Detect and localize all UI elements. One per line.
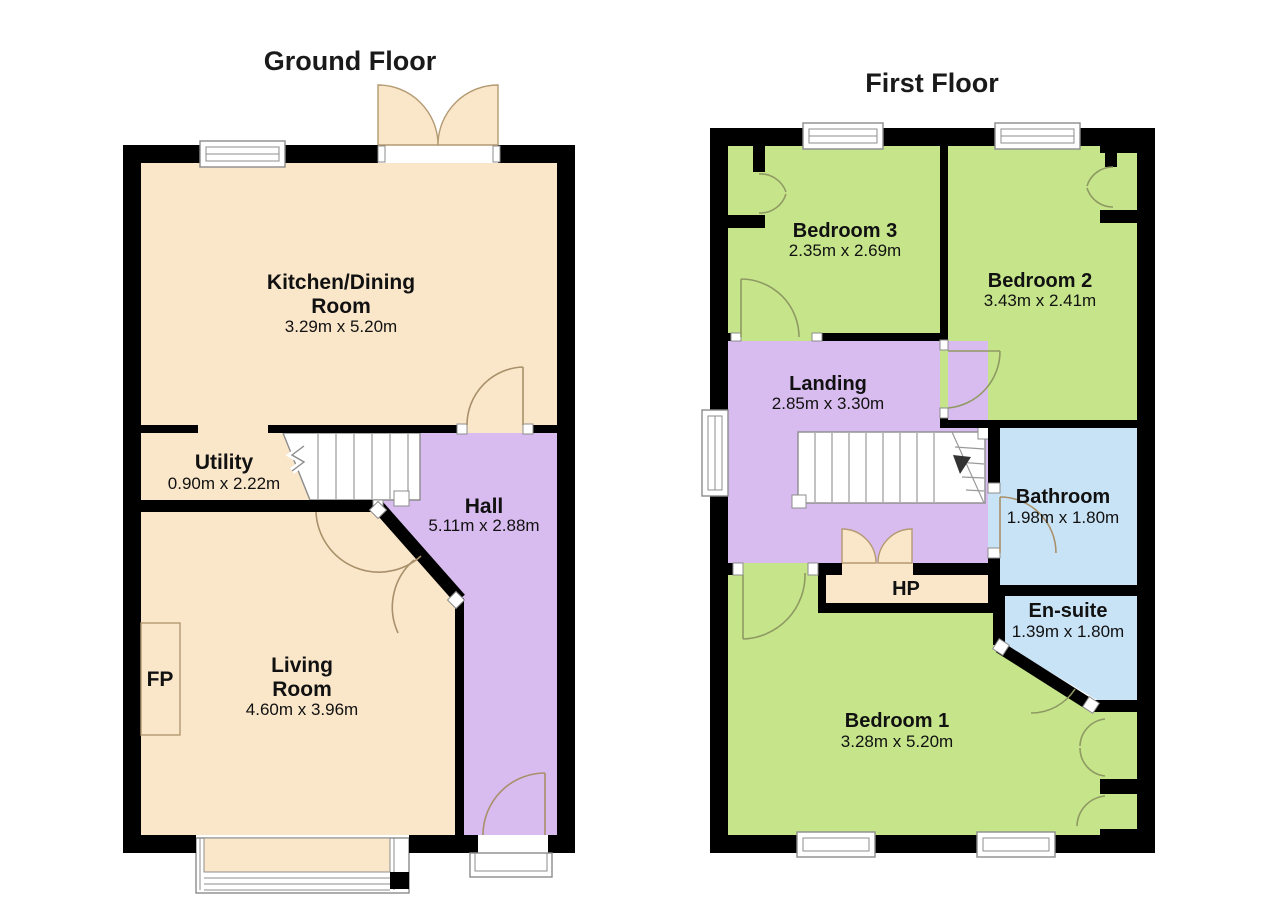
bathroom-dims: 1.98m x 1.80m (1007, 508, 1119, 527)
utility-name: Utility (195, 451, 254, 474)
floorplan-page: Ground Floor Kitchen/Dining Room 3.29m x… (0, 0, 1280, 904)
bedroom1-name: Bedroom 1 (845, 710, 949, 732)
first-floor-stairs (792, 427, 991, 508)
ground-floor-plan: Ground Floor Kitchen/Dining Room 3.29m x… (123, 46, 575, 893)
hot-press-label: HP (892, 578, 920, 600)
first-floor-plan: First Floor Bedroom 3 2.35m x 2.69m Bedr… (702, 68, 1155, 857)
kitchen-dining-floor (141, 163, 557, 425)
living-name-line2: Room (272, 678, 332, 701)
ground-floor-title: Ground Floor (264, 46, 437, 76)
floorplan-drawing: Ground Floor Kitchen/Dining Room 3.29m x… (0, 0, 1280, 904)
bedroom3-name: Bedroom 3 (793, 220, 897, 242)
bedroom3-window (803, 123, 883, 149)
bedroom1-wardrobe1-floor (1105, 712, 1137, 779)
landing-dims: 2.85m x 3.30m (772, 394, 884, 413)
kitchen-name-line2: Room (311, 295, 371, 318)
hall-name: Hall (465, 495, 504, 518)
ensuite-name: En-suite (1029, 600, 1108, 622)
living-name-line1: Living (271, 654, 333, 677)
bathroom-label: Bathroom 1.98m x 1.80m (1007, 486, 1119, 527)
bedroom1-doorway-floor (743, 563, 808, 575)
bedroom2-window (995, 123, 1080, 149)
utility-dims: 0.90m x 2.22m (168, 474, 280, 493)
bedroom3-doorway-floor (741, 333, 812, 341)
ensuite-label: En-suite 1.39m x 1.80m (1012, 600, 1124, 641)
hall-dims: 5.11m x 2.88m (428, 516, 539, 535)
kitchen-dims: 3.29m x 5.20m (285, 317, 397, 336)
landing-window (702, 410, 728, 496)
bedroom2-name: Bedroom 2 (988, 270, 1092, 292)
french-doors (378, 85, 498, 145)
bedroom1-window-left (797, 832, 875, 857)
fireplace-label: FP (147, 668, 174, 691)
bedroom1-wardrobe2-floor (1105, 794, 1137, 829)
bathroom-doorway-floor (988, 493, 1000, 548)
bedroom1-dims: 3.28m x 5.20m (841, 732, 953, 751)
bedroom2-label: Bedroom 2 3.43m x 2.41m (984, 270, 1096, 310)
bedroom3-label: Bedroom 3 2.35m x 2.69m (789, 220, 901, 260)
bedroom3-dims: 2.35m x 2.69m (789, 241, 901, 260)
bedroom2-doorway-floor (940, 350, 948, 408)
kitchen-doorway-floor (467, 425, 523, 433)
bedroom2-dims: 3.43m x 2.41m (984, 291, 1096, 310)
living-dims: 4.60m x 3.96m (246, 700, 358, 719)
bathroom-name: Bathroom (1016, 486, 1110, 508)
bedroom1-window-right (977, 832, 1055, 857)
bedroom1-label: Bedroom 1 3.28m x 5.20m (841, 710, 953, 751)
bay-window (196, 838, 409, 893)
landing-name: Landing (789, 373, 867, 395)
kitchen-window (200, 141, 285, 167)
utility-doorway-floor (198, 425, 268, 433)
first-floor-title: First Floor (865, 68, 999, 98)
front-door-step (470, 853, 552, 877)
kitchen-name-line1: Kitchen/Dining (267, 271, 415, 294)
ensuite-dims: 1.39m x 1.80m (1012, 622, 1124, 641)
